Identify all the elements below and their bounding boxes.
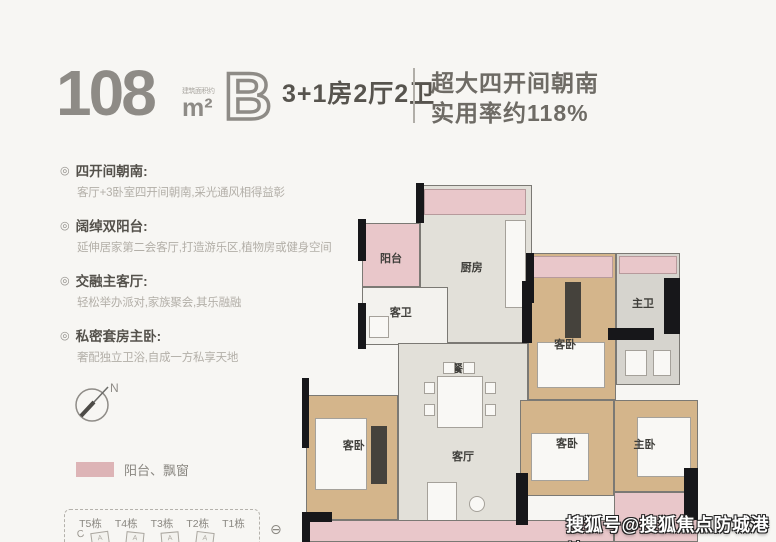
watermark-text: 搜狐号@搜狐焦点防城港站 — [566, 511, 776, 542]
wall-segment — [664, 278, 680, 334]
room-bedroom-left: 客卧 — [306, 395, 398, 520]
bullseye-bullet-icon: ◎ — [60, 219, 70, 232]
highlight-line1: 超大四开间朝南 — [431, 68, 599, 98]
bath-fixture — [369, 316, 389, 338]
room-label: 客卧 — [554, 336, 576, 352]
room-label: 主卫 — [632, 295, 654, 311]
area-value: 108 — [56, 56, 154, 130]
tower-label: T2栋 — [186, 516, 209, 531]
bay-window — [531, 256, 613, 278]
crossed-circle-icon: ⊖ — [270, 521, 282, 538]
balcony-color-swatch — [76, 462, 114, 477]
feature-title: 四开间朝南: — [76, 160, 148, 180]
room-label: 客卧 — [556, 435, 578, 451]
compass-n-label: N — [110, 381, 119, 395]
floorplan: 阳台 厨房 客卫 餐厅 客厅 客卧 主卫 — [302, 183, 700, 542]
chair — [485, 404, 496, 416]
wall-segment — [302, 512, 310, 542]
legend-label: 阳台、飘窗 — [124, 460, 189, 479]
chair — [463, 362, 475, 374]
room-bedroom-mid: 客卧 — [520, 400, 614, 496]
bullseye-bullet-icon: ◎ — [60, 329, 70, 342]
chair — [485, 382, 496, 394]
room-dining-living-column: 餐厅 客厅 — [398, 343, 528, 542]
coffee-table — [469, 496, 485, 512]
room-label: 客厅 — [452, 448, 474, 464]
header-highlight: 超大四开间朝南 实用率约118% — [431, 68, 599, 128]
bath-fixture — [625, 350, 647, 376]
wall-segment — [358, 303, 366, 349]
building-footprint-icon: A — [161, 531, 180, 542]
room-guest-bath: 客卫 — [362, 287, 448, 345]
tower-label: T3栋 — [151, 516, 174, 531]
room-label: 主卧 — [634, 436, 656, 452]
room-label: 客卧 — [343, 437, 365, 453]
building-footprint-icon: A — [90, 531, 109, 542]
highlight-line2: 实用率约118% — [431, 98, 599, 128]
wall-segment — [526, 253, 534, 303]
area-unit-block: 建筑面积约 m² — [182, 86, 215, 121]
building-footprint-icon: A — [125, 531, 144, 542]
header-divider — [413, 68, 415, 123]
dining-table — [437, 376, 483, 428]
chair — [443, 362, 455, 374]
bullseye-bullet-icon: ◎ — [60, 164, 70, 177]
feature-title: 交融主客厅: — [76, 270, 148, 290]
north-compass-icon: N — [70, 378, 126, 433]
bay-window — [619, 256, 677, 274]
room-label: 厨房 — [461, 259, 483, 275]
wall-segment — [608, 328, 654, 340]
room-label: 客卫 — [390, 304, 412, 320]
bath-fixture — [653, 350, 671, 376]
chair — [424, 404, 435, 416]
bay-window — [424, 189, 526, 215]
tower-key-box: T5栋 T4栋 T3栋 T2栋 T1栋 C A A A A — [64, 509, 260, 542]
tower-footprints: A A A A — [91, 532, 214, 542]
plan-type-letter: B — [224, 58, 272, 134]
building-footprint-icon: A — [195, 531, 214, 542]
wall-segment — [516, 473, 528, 525]
tower-label-row: T5栋 T4栋 T3栋 T2栋 T1栋 — [65, 510, 259, 531]
room-label: 阳台 — [380, 250, 402, 266]
area-unit: m² — [182, 96, 213, 121]
wall-segment — [358, 219, 366, 261]
room-bedroom-top-right: 客卧 — [528, 253, 616, 400]
wall-segment — [416, 183, 424, 223]
legend: 阳台、飘窗 — [76, 460, 189, 479]
bed — [315, 418, 367, 490]
bullseye-bullet-icon: ◎ — [60, 274, 70, 287]
wall-segment — [302, 378, 309, 448]
chair — [424, 382, 435, 394]
feature-title: 阔绰双阳台: — [76, 215, 148, 235]
wardrobe — [565, 282, 581, 338]
tower-label: T4栋 — [115, 516, 138, 531]
room-balcony: 阳台 — [362, 223, 420, 287]
feature-title: 私密套房主卧: — [76, 325, 162, 345]
tower-label: T1栋 — [222, 516, 245, 531]
wardrobe — [371, 426, 387, 484]
